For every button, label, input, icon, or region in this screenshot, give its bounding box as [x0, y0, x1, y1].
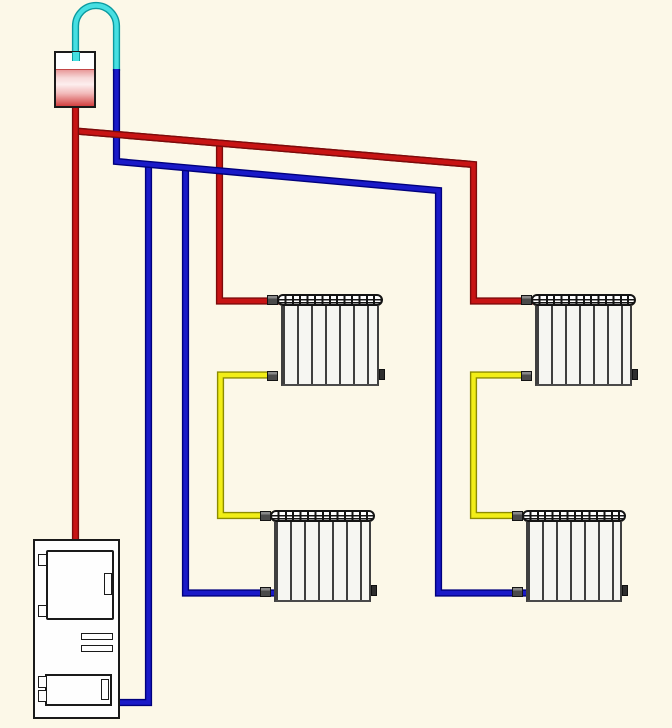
radiator-sections	[274, 522, 371, 602]
boiler-upper-door-hinge	[38, 605, 47, 617]
boiler-vent-slot	[81, 633, 113, 640]
radiator-sections	[535, 306, 632, 386]
supply-branch-left	[220, 143, 284, 301]
radiator-outlet-fitting	[260, 587, 271, 597]
boiler-lower-door-hinge	[38, 690, 47, 702]
radiator-end-plug	[632, 369, 638, 380]
radiator-inlet-fitting	[521, 295, 532, 305]
radiator-inlet-fitting	[512, 511, 523, 521]
boiler	[33, 539, 120, 719]
link-left-column	[221, 375, 277, 516]
link-right-column	[474, 375, 529, 516]
link-right-column	[474, 375, 529, 516]
return-to-boiler	[119, 164, 149, 703]
radiator-inlet-fitting	[260, 511, 271, 521]
link-left-column	[221, 375, 277, 516]
expansion-pipe-inlet-stub	[72, 52, 80, 61]
radiator-header	[277, 294, 383, 306]
radiator-sections	[281, 306, 379, 386]
radiator-bottom-left	[270, 510, 375, 602]
heating-diagram-canvas	[0, 0, 672, 728]
radiator-top-left	[277, 294, 383, 386]
boiler-upper-door-hinge	[38, 554, 47, 566]
radiator-end-plug	[622, 585, 628, 596]
return-left-column	[186, 167, 277, 593]
boiler-upper-door-handle	[104, 573, 112, 595]
radiator-header	[531, 294, 636, 306]
radiator-outlet-fitting	[512, 587, 523, 597]
boiler-lower-door-handle	[101, 679, 109, 700]
radiator-end-plug	[371, 585, 377, 596]
boiler-lower-door-hinge	[38, 676, 47, 688]
expansion-tank-liquid	[56, 69, 94, 106]
supply-header-overpass	[80, 131, 470, 164]
return-to-boiler	[119, 164, 149, 703]
radiator-outlet-fitting	[267, 371, 278, 381]
boiler-vent-slot	[81, 645, 113, 652]
radiator-bottom-right	[522, 510, 626, 602]
radiator-end-plug	[379, 369, 385, 380]
expansion-tank	[54, 51, 96, 108]
radiator-sections	[526, 522, 622, 602]
supply-header	[76, 131, 538, 301]
radiator-top-right	[531, 294, 636, 386]
return-left-column	[186, 167, 277, 593]
supply-header	[76, 131, 538, 301]
radiator-header	[522, 510, 626, 522]
radiator-header	[270, 510, 375, 522]
radiator-inlet-fitting	[267, 295, 278, 305]
radiator-outlet-fitting	[521, 371, 532, 381]
supply-branch-left	[220, 143, 284, 301]
